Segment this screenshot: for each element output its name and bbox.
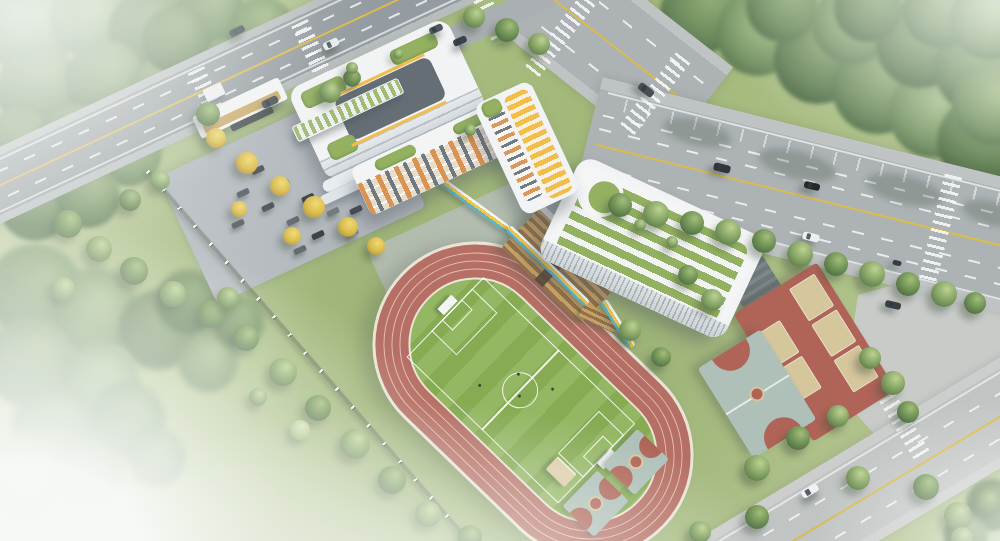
tree: [120, 257, 148, 285]
tree: [951, 527, 973, 541]
tree: [701, 289, 723, 311]
tree: [233, 325, 259, 351]
tree: [881, 371, 905, 395]
tree-layer: [0, 0, 1000, 541]
tree: [367, 237, 385, 255]
tree: [619, 319, 641, 341]
tree: [458, 525, 482, 541]
tree: [931, 281, 957, 307]
tree: [786, 426, 810, 450]
tree: [944, 502, 972, 530]
tree: [270, 176, 290, 196]
tree: [150, 170, 170, 190]
tree: [859, 261, 885, 287]
tree: [196, 102, 220, 126]
tree: [206, 128, 226, 148]
tree: [608, 193, 632, 217]
tree: [378, 466, 406, 494]
tree: [217, 287, 239, 309]
tree: [464, 124, 476, 136]
tree: [338, 217, 358, 237]
tree: [975, 489, 1000, 515]
tree: [119, 189, 141, 211]
tree: [634, 219, 646, 231]
tree: [666, 236, 678, 248]
tree: [463, 6, 485, 28]
tree: [495, 18, 519, 42]
tree: [846, 466, 870, 490]
tree: [715, 219, 741, 245]
tree: [897, 401, 919, 423]
tree: [305, 395, 331, 421]
tree: [249, 388, 267, 406]
tree: [415, 501, 441, 527]
tree: [859, 347, 881, 369]
tree: [744, 455, 770, 481]
tree: [86, 236, 112, 262]
tree: [303, 196, 325, 218]
campus-aerial-rendering: [0, 0, 1000, 541]
tree: [964, 292, 986, 314]
tree: [340, 429, 370, 459]
tree: [283, 227, 301, 245]
tree: [319, 81, 341, 103]
tree: [745, 505, 769, 529]
tree: [346, 62, 358, 74]
tree: [651, 347, 671, 367]
tree: [824, 252, 848, 276]
tree: [913, 474, 939, 500]
tree: [643, 201, 669, 227]
tree: [752, 229, 776, 253]
tree: [269, 358, 297, 386]
tree: [689, 521, 711, 541]
tree: [54, 210, 82, 238]
tree: [528, 33, 550, 55]
tree: [678, 265, 698, 285]
tree: [231, 201, 247, 217]
tree: [393, 49, 403, 59]
tree: [160, 281, 186, 307]
tree: [290, 420, 310, 440]
tree: [236, 152, 258, 174]
tree: [787, 241, 813, 267]
tree: [896, 272, 920, 296]
tree: [680, 211, 704, 235]
tree: [51, 277, 75, 301]
tree: [827, 405, 849, 427]
